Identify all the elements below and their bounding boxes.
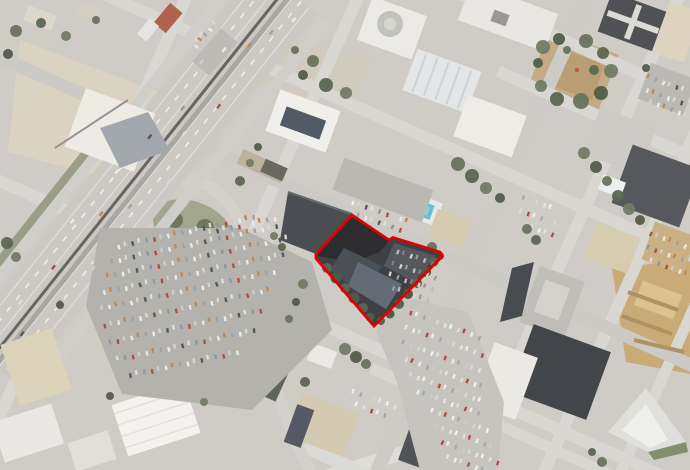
satellite-image (0, 0, 690, 470)
photo-layer (0, 0, 690, 470)
haze-overlay (0, 0, 690, 470)
aerial-map[interactable] (0, 0, 690, 470)
